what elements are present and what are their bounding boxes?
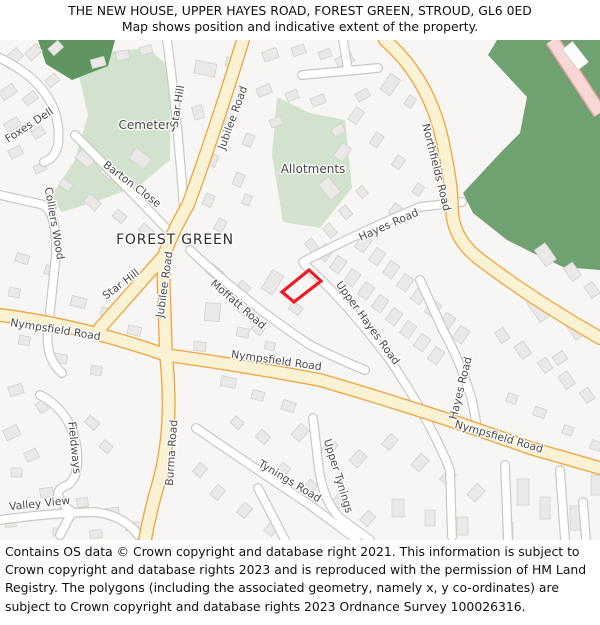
- property-map-document: THE NEW HOUSE, UPPER HAYES ROAD, FOREST …: [0, 0, 600, 625]
- area-label-allotments: Allotments: [281, 162, 346, 176]
- copyright-notice: Contains OS data © Crown copyright and d…: [0, 540, 600, 625]
- page-subtitle: Map shows position and indicative extent…: [0, 19, 600, 35]
- page-title: THE NEW HOUSE, UPPER HAYES ROAD, FOREST …: [0, 3, 600, 19]
- place-label-forest-green: FOREST GREEN: [116, 232, 234, 248]
- header: THE NEW HOUSE, UPPER HAYES ROAD, FOREST …: [0, 0, 600, 40]
- map-canvas: Foxes Dell Cemetery Star Hill Jubilee Ro…: [0, 40, 600, 540]
